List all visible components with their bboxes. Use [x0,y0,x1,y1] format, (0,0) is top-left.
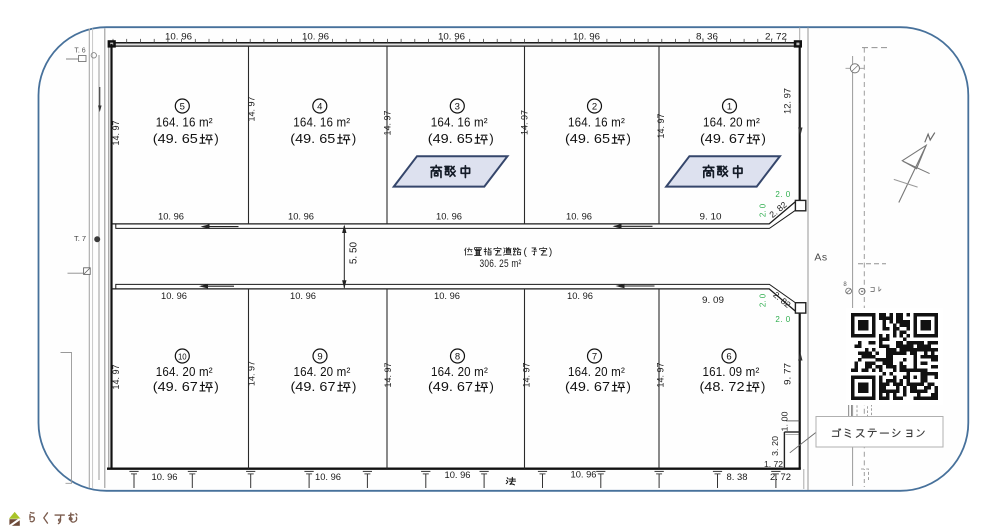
svg-text:14. 97: 14. 97 [520,110,530,135]
svg-text:1. 00: 1. 00 [780,411,790,431]
svg-text:14. 97: 14. 97 [246,96,256,121]
svg-text:10. 96: 10. 96 [571,470,597,480]
svg-text:164. 16 m²: 164. 16 m² [156,115,213,130]
svg-text:9. 10: 9. 10 [700,212,722,222]
svg-text:3. 20: 3. 20 [770,436,780,456]
svg-text:): ) [627,379,631,394]
svg-text:10. 96: 10. 96 [152,472,178,482]
svg-text:As: As [814,252,827,264]
svg-text:164. 20 m²: 164. 20 m² [431,364,488,379]
svg-text:2. 0: 2. 0 [775,190,790,199]
svg-text:10. 96: 10. 96 [165,31,192,42]
svg-text:164. 16 m²: 164. 16 m² [431,115,488,130]
svg-text:8: 8 [455,351,460,362]
svg-text:10. 96: 10. 96 [567,291,593,301]
svg-text:164. 20 m²: 164. 20 m² [703,115,760,130]
svg-text:14. 97: 14. 97 [246,361,256,386]
svg-text:2: 2 [592,101,597,112]
svg-text:14. 97: 14. 97 [383,363,393,388]
svg-text:(49. 65: (49. 65 [153,131,198,146]
svg-text:2. 0: 2. 0 [759,293,768,307]
svg-text:(49. 67: (49. 67 [153,379,198,394]
svg-text:14. 97: 14. 97 [655,363,665,388]
svg-text:): ) [352,379,356,394]
svg-text:10. 96: 10. 96 [445,470,471,480]
svg-text:10: 10 [178,352,187,361]
svg-text:10. 96: 10. 96 [158,212,184,222]
svg-text:3: 3 [455,101,460,112]
svg-text:1. 72: 1. 72 [764,459,783,469]
svg-text:164. 20 m²: 164. 20 m² [156,364,213,379]
svg-text:): ) [489,131,493,146]
svg-text:8. 36: 8. 36 [696,31,718,42]
svg-text:): ) [627,131,631,146]
svg-text:T. 7: T. 7 [74,234,86,243]
svg-text:T. 6: T. 6 [74,48,85,55]
svg-text:10. 96: 10. 96 [436,212,462,222]
svg-text:2. 72: 2. 72 [770,472,791,482]
svg-text:): ) [490,379,494,394]
svg-text:4: 4 [317,101,322,112]
svg-text:5: 5 [180,101,185,112]
svg-text:9. 09: 9. 09 [702,295,724,305]
svg-text:(49. 65: (49. 65 [428,131,473,146]
svg-text:10. 96: 10. 96 [288,212,314,222]
svg-text:161. 09 m²: 161. 09 m² [703,364,760,379]
svg-text:10. 96: 10. 96 [438,31,465,42]
svg-text:): ) [762,131,766,146]
svg-text:164. 20 m²: 164. 20 m² [568,364,625,379]
svg-text:10. 96: 10. 96 [315,472,341,482]
svg-text:): ) [352,131,356,146]
svg-text:14. 97: 14. 97 [656,114,666,139]
svg-text:10. 96: 10. 96 [434,291,460,301]
svg-text:(49. 67: (49. 67 [565,379,610,394]
svg-text:306. 25 m²: 306. 25 m² [480,258,522,270]
svg-text:2. 0: 2. 0 [775,315,790,324]
svg-text:164. 20 m²: 164. 20 m² [294,364,351,379]
svg-text:2. 0: 2. 0 [759,203,768,217]
svg-text:): ) [549,247,552,258]
svg-text:14. 97: 14. 97 [111,121,121,146]
svg-text:(49. 67: (49. 67 [428,379,473,394]
svg-text:(49. 65: (49. 65 [565,131,610,146]
svg-text:10. 96: 10. 96 [302,31,329,42]
svg-text:5. 50: 5. 50 [349,241,360,264]
svg-text:9: 9 [317,351,322,362]
svg-text:9. 77: 9. 77 [783,363,793,385]
svg-text:14. 97: 14. 97 [522,363,532,388]
svg-text:6: 6 [726,351,731,362]
svg-text:2. 72: 2. 72 [765,31,787,42]
svg-text:8. 38: 8. 38 [727,472,748,482]
svg-text:(49. 67: (49. 67 [700,131,745,146]
svg-text:10. 96: 10. 96 [290,291,316,301]
svg-text:10. 96: 10. 96 [161,291,187,301]
svg-text:10. 96: 10. 96 [573,31,600,42]
svg-text:7: 7 [592,351,597,362]
svg-text:(49. 65: (49. 65 [290,131,335,146]
svg-text:(49. 67: (49. 67 [291,379,336,394]
svg-text:1: 1 [727,101,732,112]
svg-text:164. 16 m²: 164. 16 m² [568,115,625,130]
svg-text:): ) [214,379,218,394]
svg-text:): ) [214,131,218,146]
svg-text:(48. 72: (48. 72 [700,379,745,394]
svg-text:14. 97: 14. 97 [383,111,393,136]
svg-text:164. 16 m²: 164. 16 m² [293,115,350,130]
svg-text:12. 97: 12. 97 [783,88,793,114]
svg-text:10. 96: 10. 96 [566,212,592,222]
svg-text:14. 97: 14. 97 [111,365,121,390]
svg-text:): ) [761,379,765,394]
